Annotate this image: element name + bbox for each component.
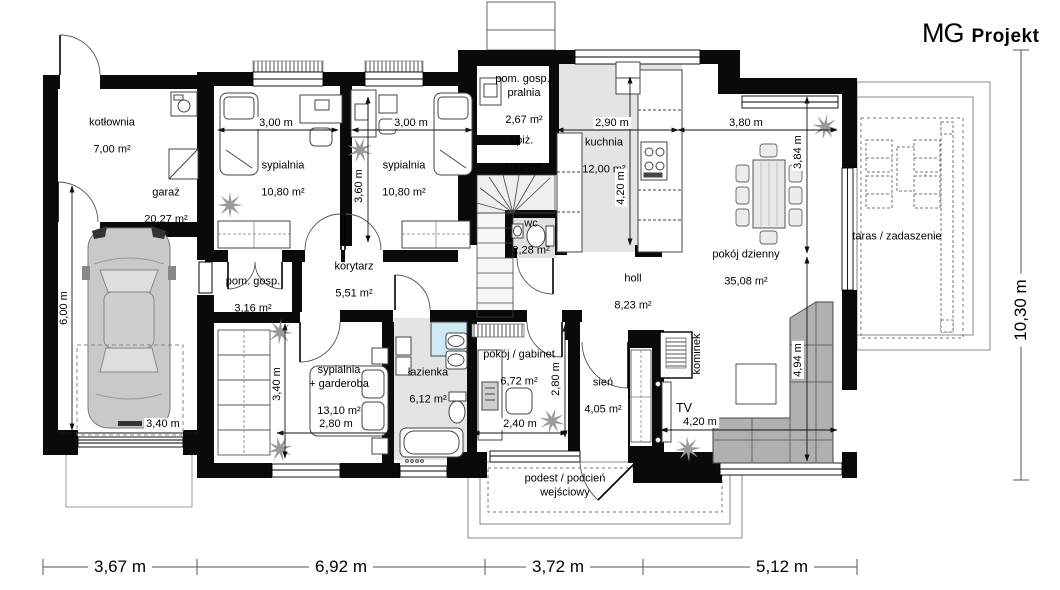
room-label-pokoj-dzienny: pokój dzienny 35,08 m² [712, 235, 779, 304]
brand-logo: MG Projekt [922, 20, 1039, 48]
dim-bed-width: 2,80 m [317, 418, 355, 430]
room-label-wc: wc 2,28 m² [512, 204, 549, 273]
dim-sypialnia2-width: 3,00 m [392, 117, 430, 129]
room-label-pom-gosp: pom. gosp. 3,16 m² [226, 262, 280, 331]
hall-closet-icon [630, 348, 652, 446]
dim-bottom-4: 5,12 m [750, 557, 814, 577]
tv-cabinet-icon [662, 382, 671, 442]
dim-salon-width: 3,80 m [727, 117, 765, 129]
dim-gabinet-width: 2,40 m [501, 418, 539, 430]
dim-garaz-height: 6,00 m [58, 289, 70, 327]
dim-tv-wall-width: 4,20 m [681, 416, 719, 428]
dim-garderoba-height: 3,40 m [271, 365, 283, 403]
bed-icon-sypialnia1 [220, 93, 258, 175]
cooktop-icon [641, 142, 667, 180]
dim-salon-height-1: 3,84 m [792, 133, 804, 171]
chimney-outline [487, 2, 555, 50]
dim-salon-height-2: 4,94 m [792, 341, 804, 379]
coffee-table-icon [736, 364, 776, 404]
dim-kuchnia-height: 4,20 m [615, 169, 627, 207]
brand-logo-mg: MG [922, 20, 964, 47]
room-label-korytarz: korytarz 5,51 m² [334, 247, 373, 316]
dim-total-height: 10,30 m [1011, 273, 1031, 346]
room-label-kotlownia: kotłownia 7,00 m² [89, 103, 135, 172]
dim-bottom-3: 3,72 m [526, 557, 590, 577]
dim-garaz-width: 3,40 m [144, 418, 182, 430]
room-label-holl: holl 8,23 m² [614, 259, 651, 328]
driveway-outline [66, 455, 192, 507]
room-label-sien: sień 4,05 m² [584, 363, 621, 432]
room-label-lazienka: łazienka 6,12 m² [408, 353, 448, 422]
bed-icon-sypialnia2 [434, 93, 472, 175]
room-label-sypialnia-1: sypialnia 10,80 m² [261, 146, 304, 215]
room-label-gabinet: pokój / gabinet 6,72 m² [483, 335, 555, 404]
dim-sypialnia-height: 3,60 m [353, 167, 365, 205]
brand-logo-projekt: Projekt [972, 26, 1040, 48]
room-label-spizarnia: spiż. 1,17 m² [503, 121, 540, 190]
dim-kuchnia-width: 2,90 m [593, 117, 631, 129]
room-label-garaz: garaż 20,27 m² [144, 173, 187, 242]
desk-icon-sypialnia1 [300, 95, 342, 146]
garderoba-closet-icon [218, 330, 270, 455]
room-label-podest: podest / podcień wejściowy [525, 459, 606, 514]
room-label-taras: taras / zadaszenie [852, 216, 941, 257]
floor-plan: MG Projekt kotłownia 7,00 m² garaż 20,27… [0, 0, 1060, 590]
dim-bottom-2: 6,92 m [309, 557, 373, 577]
room-label-sypialnia-2: sypialnia 10,80 m² [382, 146, 425, 215]
room-label-kominek: kominek [691, 334, 703, 375]
dim-sypialnia1-width: 3,00 m [257, 117, 295, 129]
room-label-tv: TV [676, 401, 692, 415]
car-icon [82, 226, 176, 428]
dim-gabinet-height: 2,80 m [550, 360, 562, 398]
dim-bottom-1: 3,67 m [88, 557, 152, 577]
